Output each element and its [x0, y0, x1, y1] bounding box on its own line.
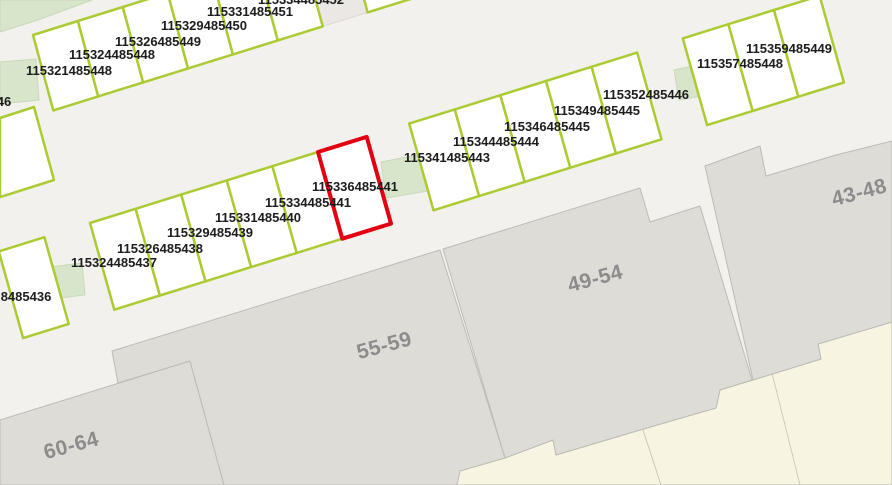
map-canvas[interactable]: 60-6455-5949-5443-4846115321485448115324… — [0, 0, 892, 485]
cadastral-map: 60-6455-5949-5443-4846115321485448115324… — [0, 0, 892, 485]
parcel-label-115326485449: 115326485449 — [115, 34, 201, 49]
parcel-label-115324485437: 115324485437 — [71, 255, 157, 270]
parcel-label-115344485444: 115344485444 — [453, 134, 540, 149]
parcel-label-115336485441: 115336485441 — [312, 179, 398, 194]
parcel-label-46: 46 — [0, 94, 11, 109]
parcel-label-115341485443: 115341485443 — [404, 150, 490, 165]
parcel-label-115349485445: 115349485445 — [554, 103, 640, 118]
parcel-label-115329485439: 115329485439 — [167, 225, 253, 240]
parcel-label-115359485449: 115359485449 — [746, 41, 832, 56]
parcel-label-115326485438: 115326485438 — [117, 241, 203, 256]
parcel-label-115334485441: 115334485441 — [265, 195, 351, 210]
parcel-label-115357485448: 115357485448 — [697, 56, 783, 71]
parcel-label-8485436: 8485436 — [1, 289, 52, 304]
parcel-label-115346485445: 115346485445 — [504, 119, 590, 134]
parcel-label-115329485450: 115329485450 — [161, 18, 247, 33]
parcel-label-115331485440: 115331485440 — [215, 210, 301, 225]
parcel-label-115324485448: 115324485448 — [69, 47, 155, 62]
parcel-label-115352485446: 115352485446 — [603, 87, 689, 102]
parcel-label-115334485452: 115334485452 — [258, 0, 344, 7]
parcel-label-115321485448: 115321485448 — [26, 63, 112, 78]
